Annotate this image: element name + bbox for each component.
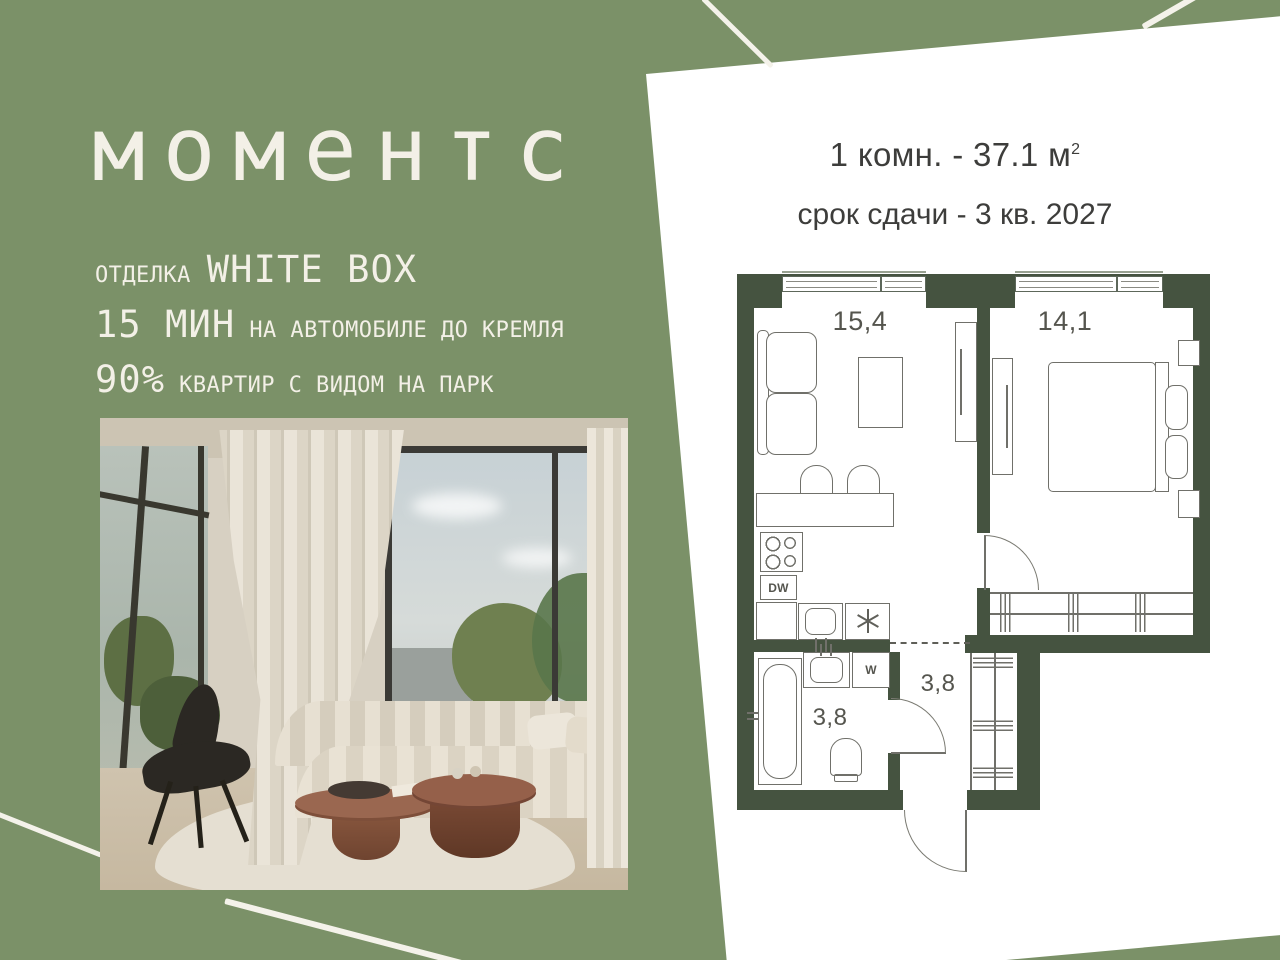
floor-plan: 15,4 DW 14,1 [725, 256, 1230, 888]
hanger-marks [1068, 594, 1081, 632]
bar-counter [756, 493, 894, 527]
window [782, 276, 881, 292]
faucet-tick [820, 644, 822, 656]
wall [737, 274, 754, 810]
offer-rooms-area: 1 комн. - 37.1 м [830, 136, 1071, 173]
window [881, 276, 926, 292]
washer: W [852, 652, 890, 688]
nightstand [1178, 340, 1200, 366]
tub-faucet [747, 712, 758, 714]
coffee-table [858, 357, 903, 428]
bedroom-door-arc [984, 535, 1039, 590]
tub-faucet [747, 718, 758, 720]
hanger-marks [973, 718, 1013, 731]
park-value: 90% [95, 358, 165, 401]
bedroom-area-label: 14,1 [1025, 306, 1105, 337]
hanger-marks [973, 765, 1013, 778]
finish-label: ОТДЕЛКА [95, 263, 191, 288]
drive-value: 15 МИН [95, 303, 235, 346]
wall [977, 588, 990, 635]
park-text: КВАРТИР С ВИДОМ НА ПАРК [179, 373, 494, 398]
hallway-area-label: 3,8 [903, 670, 973, 698]
wall [888, 753, 900, 790]
faucet-tick [830, 644, 832, 656]
bathroom-area-label: 3,8 [795, 704, 865, 732]
brand-logo: моментс [92, 106, 586, 194]
wall [737, 274, 782, 308]
photo-curtain [587, 428, 628, 868]
wall [926, 274, 1015, 308]
dishwasher: DW [760, 575, 797, 600]
entrance-door-arc [904, 810, 966, 872]
bathroom-door-arc [891, 698, 946, 753]
photo-door-frame [100, 490, 209, 519]
photo-cloud [502, 548, 572, 568]
wall [737, 790, 903, 810]
hanger-marks [973, 655, 1013, 668]
stove [760, 532, 803, 572]
faucet-tick [825, 638, 827, 652]
photo-tray [328, 781, 390, 799]
finish-value: WHITE BOX [207, 248, 417, 291]
photo-table-top [412, 774, 536, 806]
drive-text: НА АВТОМОБИЛЕ ДО КРЕМЛЯ [249, 318, 564, 343]
photo-cup [452, 768, 463, 779]
wall [1193, 274, 1210, 653]
interior-photo [100, 418, 628, 890]
offer-title: 1 комн. - 37.1 м2 [725, 136, 1185, 174]
pillow [1165, 385, 1188, 430]
decor-line [701, 0, 774, 68]
hanger-marks [1135, 594, 1148, 632]
bar-stool [800, 465, 833, 493]
wall [977, 300, 990, 533]
ad-banner: моментс ОТДЕЛКА WHITE BOX 15 МИН НА АВТО… [0, 0, 1280, 960]
cabinet [955, 322, 977, 442]
wall [965, 635, 1210, 653]
hanger-marks [1000, 594, 1013, 632]
living-area-label: 15,4 [820, 306, 900, 337]
window [1117, 276, 1163, 292]
zone-dashed-line [890, 642, 970, 644]
kitchen-counter [756, 602, 797, 640]
pillow [1165, 435, 1188, 479]
area-superscript: 2 [1071, 141, 1080, 158]
faucet-tick [815, 638, 817, 652]
wardrobe-edge [990, 592, 1193, 594]
wardrobe [992, 358, 1013, 475]
sofa-cushion [766, 393, 817, 455]
window-sill [782, 271, 926, 273]
bed-mattress [1048, 362, 1156, 492]
offer-deadline: срок сдачи - 3 кв. 2027 [725, 198, 1185, 232]
fridge-star-icon [867, 609, 869, 633]
nightstand [1178, 490, 1200, 518]
window-sill [1015, 271, 1163, 273]
decor-line [0, 810, 103, 858]
wall [754, 640, 890, 652]
wall [967, 790, 1040, 810]
wardrobe-rail [990, 613, 1193, 615]
toilet [830, 738, 862, 776]
photo-cloud [412, 493, 502, 519]
bath-sink [803, 652, 850, 688]
decor-line [224, 898, 473, 960]
sofa-cushion [766, 332, 817, 393]
kitchen-sink [798, 603, 843, 640]
photo-cup [470, 766, 481, 777]
closet-edge [970, 653, 972, 790]
wall [1017, 653, 1040, 790]
window [1015, 276, 1117, 292]
bar-stool [847, 465, 880, 493]
